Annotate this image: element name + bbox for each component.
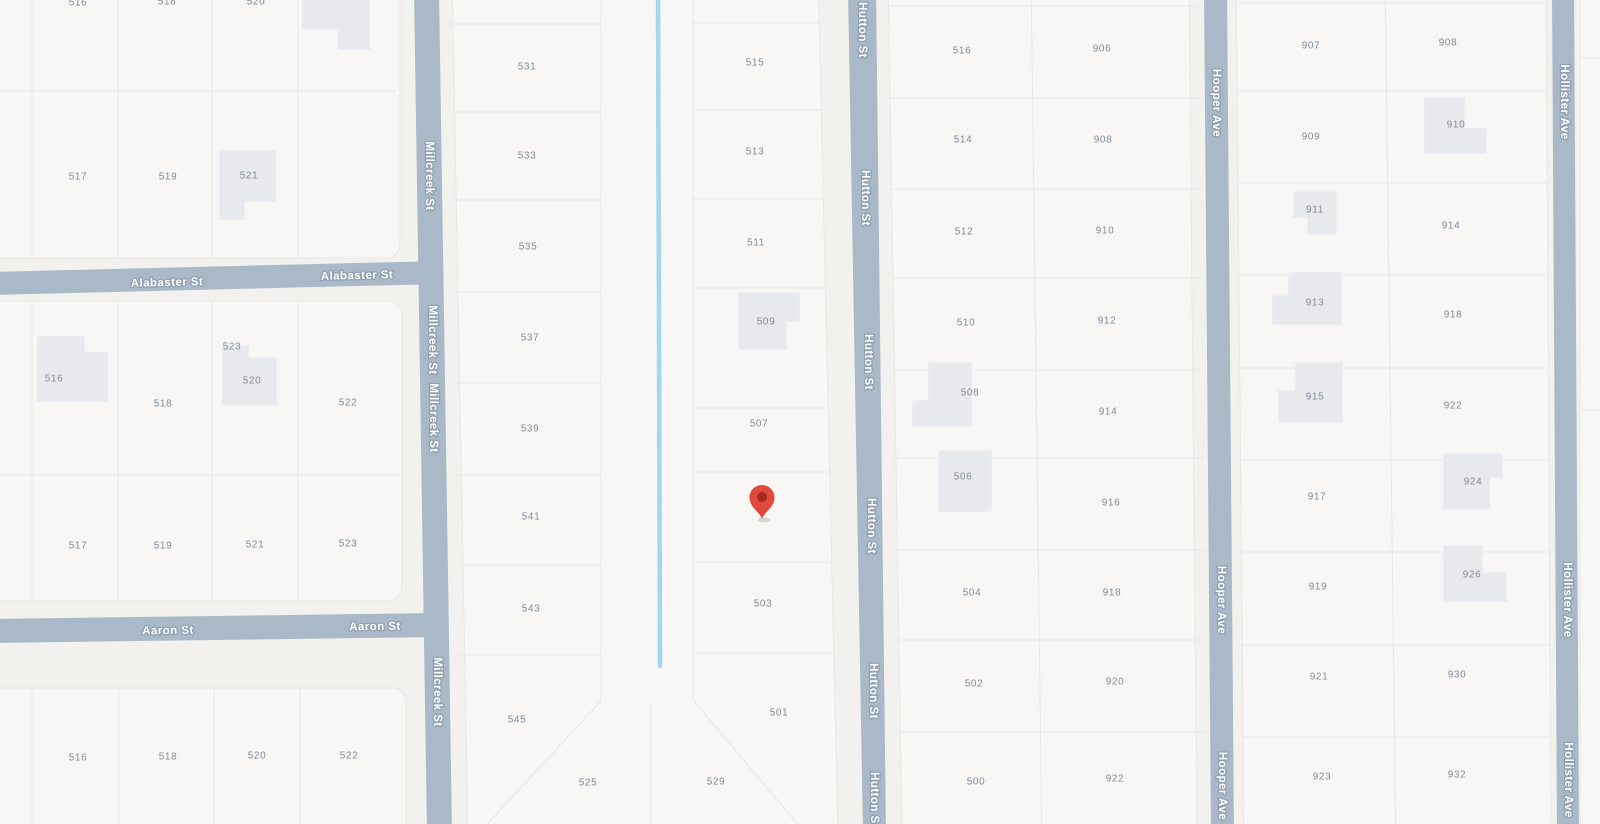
street-name-label-millcreek-st: Millcreek St — [431, 657, 443, 726]
parcel-number-label: 907 — [1302, 41, 1321, 52]
parcel-number-label: 520 — [243, 376, 262, 387]
street-name-label-hutton-st: Hutton St — [865, 498, 877, 554]
parcel-number-label: 520 — [248, 751, 267, 762]
parcel-number-label: 909 — [1302, 132, 1321, 143]
parcel-number-label: 523 — [339, 539, 358, 550]
parcel-number-label: 515 — [746, 58, 765, 69]
parcel-number-label: 518 — [154, 399, 173, 410]
city-block — [452, 0, 838, 824]
parcel-number-label: 516 — [953, 46, 972, 57]
parcel-number-label: 906 — [1093, 44, 1112, 55]
street-name-label-hutton-st: Hutton St — [859, 170, 871, 226]
parcel-number-label: 517 — [69, 172, 88, 183]
parcel-number-label: 930 — [1448, 670, 1467, 681]
parcel-number-label: 522 — [339, 398, 358, 409]
parcel-number-label: 914 — [1099, 407, 1118, 418]
parcel-number-label: 508 — [961, 388, 980, 399]
street-name-label-hollister-ave: Hollister Ave — [1558, 64, 1570, 139]
parcel-number-label: 525 — [579, 778, 598, 789]
parcel-number-label: 519 — [154, 541, 173, 552]
parcel-number-label: 537 — [521, 333, 540, 344]
parcel-number-label: 908 — [1094, 135, 1113, 146]
street-name-label-millcreek-st: Millcreek St — [427, 383, 439, 452]
parcel-number-label: 507 — [750, 419, 769, 430]
parcel-number-label: 517 — [69, 541, 88, 552]
parcel-number-label: 510 — [957, 318, 976, 329]
street-name-label-hutton-st: Hutton St — [868, 772, 880, 824]
street-name-label-millcreek-st: Millcreek St — [423, 141, 435, 210]
parcel-number-label: 917 — [1308, 492, 1327, 503]
parcel-number-label: 516 — [69, 0, 88, 9]
parcel-number-label: 522 — [340, 751, 359, 762]
parcel-number-label: 511 — [747, 238, 765, 249]
parcel-number-label: 915 — [1306, 392, 1325, 403]
parcel-number-label: 921 — [1310, 672, 1329, 683]
parcel-number-label: 911 — [1306, 205, 1324, 216]
parcel-number-label: 908 — [1439, 38, 1458, 49]
parcel-number-label: 518 — [158, 0, 177, 8]
parcel-number-label: 500 — [967, 777, 986, 788]
street-name-label-hutton-st: Hutton St — [856, 2, 868, 58]
parcel-number-label: 910 — [1447, 120, 1466, 131]
parcel-number-label: 543 — [522, 604, 541, 615]
parcel-number-label: 922 — [1444, 401, 1463, 412]
parcel-number-label: 918 — [1103, 588, 1122, 599]
parcel-number-label: 919 — [1309, 582, 1328, 593]
parcel-number-label: 916 — [1102, 498, 1121, 509]
parcel-number-label: 506 — [954, 472, 973, 483]
parcel-number-label: 932 — [1448, 770, 1467, 781]
parcel-number-label: 529 — [707, 777, 726, 788]
parcel-number-label: 914 — [1442, 221, 1461, 232]
parcel-number-label: 920 — [1106, 677, 1125, 688]
parcel-number-label: 501 — [770, 708, 789, 719]
map-pin-shadow — [758, 518, 770, 523]
street-name-label-hooper-ave: Hooper Ave — [1216, 752, 1228, 820]
street-name-label-millcreek-st: Millcreek St — [426, 305, 438, 374]
parcel-number-label: 520 — [247, 0, 266, 8]
street-name-label-hutton-st: Hutton St — [862, 334, 874, 390]
parcel-number-label: 503 — [754, 599, 773, 610]
parcel-number-label: 541 — [522, 512, 541, 523]
street-name-label-hooper-ave: Hooper Ave — [1210, 69, 1222, 137]
street-name-label-hooper-ave: Hooper Ave — [1215, 566, 1227, 634]
parcel-number-label: 913 — [1306, 298, 1325, 309]
parcel-number-label: 514 — [954, 135, 973, 146]
parcel-number-label: 539 — [521, 424, 540, 435]
parcel-number-label: 922 — [1106, 774, 1125, 785]
street-name-label-aaron-st: Aaron St — [142, 625, 194, 638]
parcel-number-label: 918 — [1444, 310, 1463, 321]
parcel-number-label: 924 — [1464, 477, 1483, 488]
parcel-number-label: 523 — [223, 342, 242, 353]
street-name-label-hollister-ave: Hollister Ave — [1562, 742, 1574, 817]
parcel-number-label: 912 — [1098, 316, 1117, 327]
parcel-number-label: 521 — [246, 540, 265, 551]
parcel-number-label: 910 — [1096, 226, 1115, 237]
parcel-number-label: 518 — [159, 752, 178, 763]
map-pin-dot — [757, 492, 767, 502]
street-name-label-alabaster-st: Alabaster St — [321, 269, 394, 283]
parcel-number-label: 533 — [518, 151, 537, 162]
parcel-number-label: 513 — [746, 147, 765, 158]
street-name-label-hutton-st: Hutton St — [867, 663, 879, 719]
parcel-number-label: 535 — [519, 242, 538, 253]
map-canvas[interactable]: Millcreek StMillcreek StMillcreek StMill… — [0, 0, 1600, 824]
parcel-number-label: 516 — [69, 753, 88, 764]
parcel-number-label: 516 — [45, 374, 64, 385]
parcel-number-label: 512 — [955, 227, 974, 238]
creek-waterway — [658, 0, 660, 666]
parcel-number-label: 926 — [1463, 570, 1482, 581]
parcel-number-label: 531 — [518, 62, 537, 73]
street-name-label-aaron-st: Aaron St — [349, 621, 401, 634]
parcel-number-label: 509 — [757, 317, 776, 328]
parcel-number-label: 519 — [159, 172, 178, 183]
parcel-number-label: 923 — [1313, 772, 1332, 783]
parcel-number-label: 545 — [508, 715, 527, 726]
street-name-label-alabaster-st: Alabaster St — [131, 276, 204, 290]
parcel-number-label: 521 — [240, 171, 259, 182]
city-block — [1580, 0, 1600, 824]
parcel-number-label: 502 — [965, 679, 984, 690]
parcel-number-label: 504 — [963, 588, 982, 599]
map-svg: Millcreek StMillcreek StMillcreek StMill… — [0, 0, 1600, 824]
street-name-label-hollister-ave: Hollister Ave — [1561, 562, 1573, 637]
